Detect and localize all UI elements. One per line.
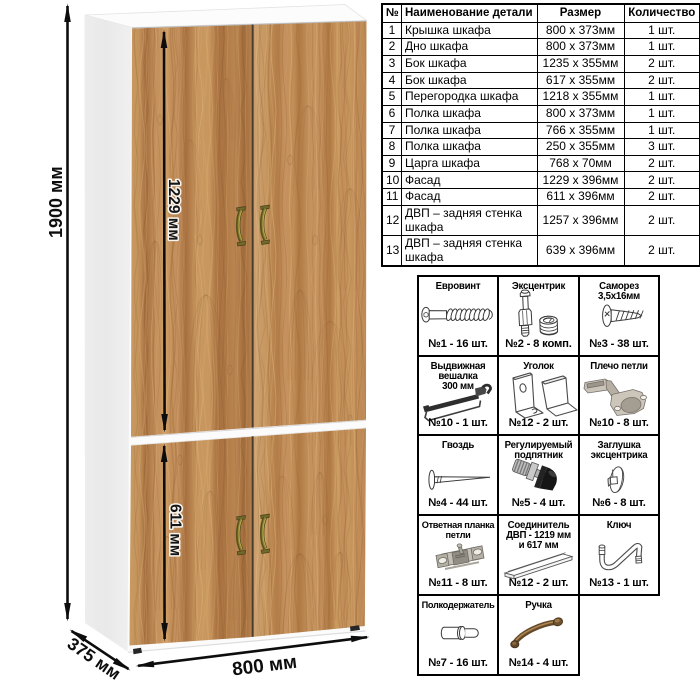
svg-text:800 мм: 800 мм	[231, 652, 298, 681]
svg-text:611 мм: 611 мм	[167, 504, 184, 556]
svg-text:1229 мм: 1229 мм	[165, 179, 182, 241]
svg-text:1900 мм: 1900 мм	[46, 166, 66, 238]
